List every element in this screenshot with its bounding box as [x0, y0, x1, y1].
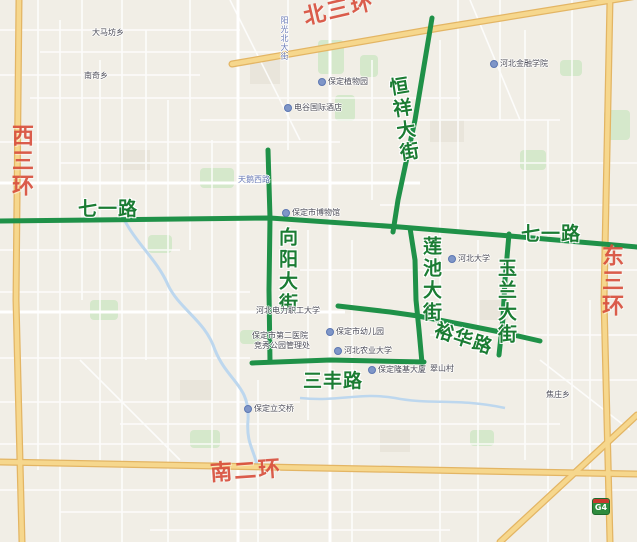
expressway-shield-text: G4	[595, 503, 607, 512]
city-blocks	[120, 60, 508, 452]
road-sanfeng	[252, 360, 424, 363]
ring-road-south	[0, 462, 637, 474]
road-lianchi	[410, 228, 422, 363]
park-areas	[90, 40, 630, 448]
expressway-shield-g4: G4	[592, 498, 610, 515]
ring-roads-casing	[0, 0, 637, 542]
road-yulan	[499, 234, 509, 355]
road-network-svg	[0, 0, 637, 542]
road-xiangyang	[268, 150, 270, 362]
road-hengxiang	[393, 18, 432, 232]
map-image[interactable]: 北三环 西三环 南二环 东三环 七一路 七一路 向阳大街 恒祥大街 莲池大街 玉…	[0, 0, 637, 542]
river	[118, 205, 505, 470]
road-qiyilu	[0, 218, 637, 247]
expressway-g4	[500, 415, 637, 542]
